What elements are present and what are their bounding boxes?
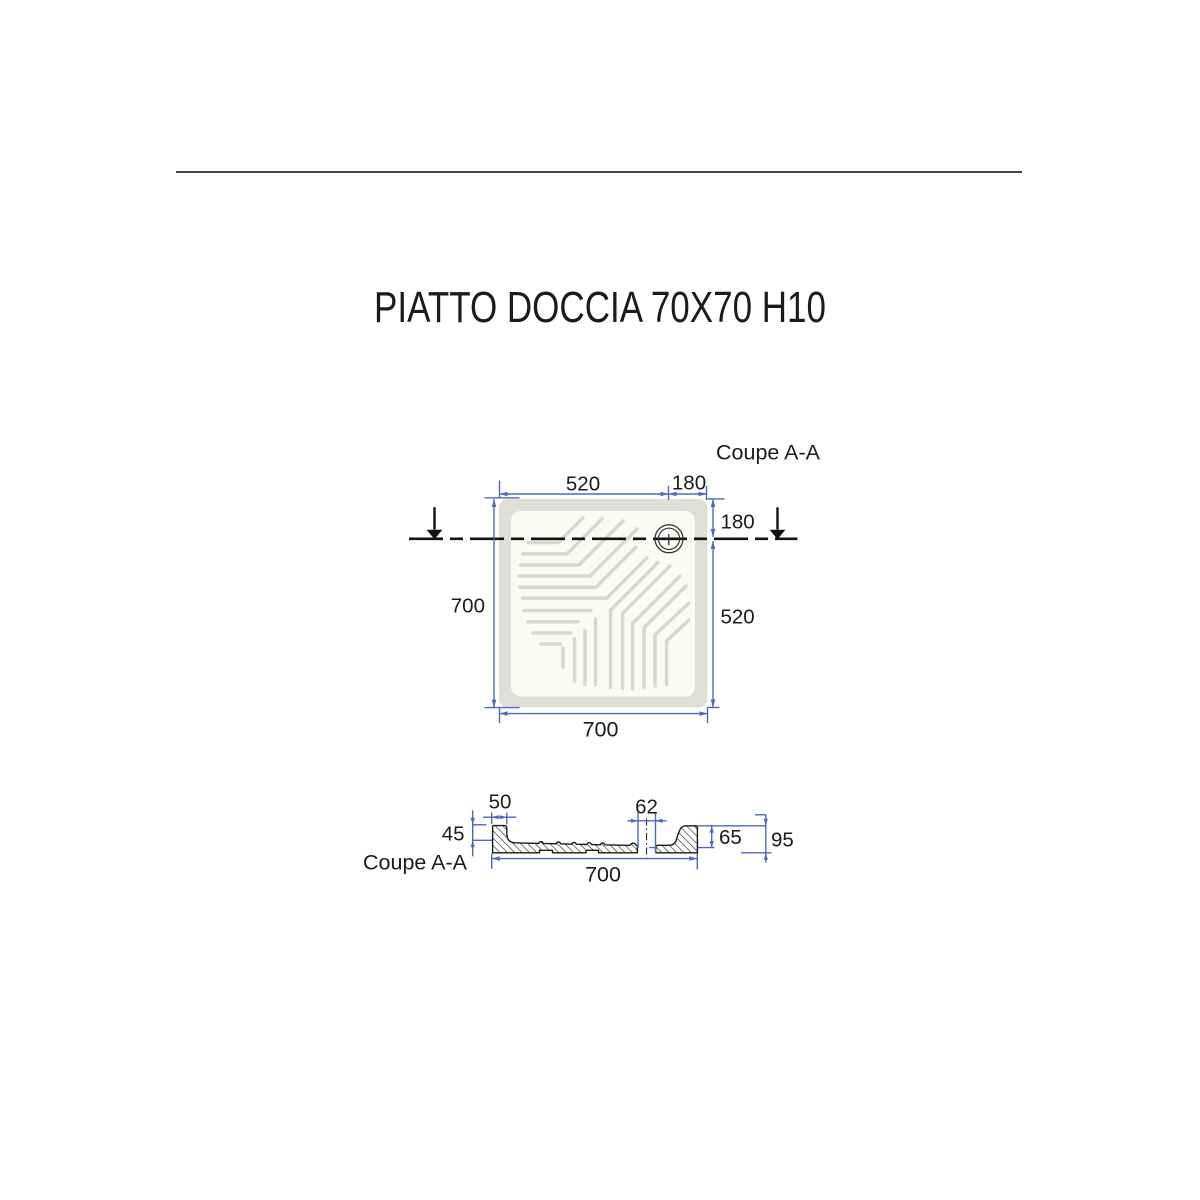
- svg-text:PIATTO DOCCIA 70X70 H10: PIATTO DOCCIA 70X70 H10: [374, 284, 826, 332]
- svg-text:700: 700: [451, 595, 485, 618]
- svg-text:50: 50: [489, 791, 512, 814]
- svg-text:180: 180: [721, 511, 755, 534]
- svg-text:700: 700: [583, 717, 619, 741]
- svg-text:520: 520: [721, 606, 755, 629]
- svg-text:65: 65: [719, 826, 742, 849]
- svg-text:45: 45: [442, 822, 465, 845]
- svg-text:95: 95: [771, 829, 794, 852]
- svg-text:520: 520: [566, 473, 600, 496]
- svg-text:62: 62: [635, 796, 658, 819]
- svg-text:Coupe A-A: Coupe A-A: [363, 851, 468, 875]
- svg-text:700: 700: [585, 863, 621, 887]
- svg-text:180: 180: [672, 472, 706, 495]
- svg-text:Coupe A-A: Coupe A-A: [716, 441, 821, 465]
